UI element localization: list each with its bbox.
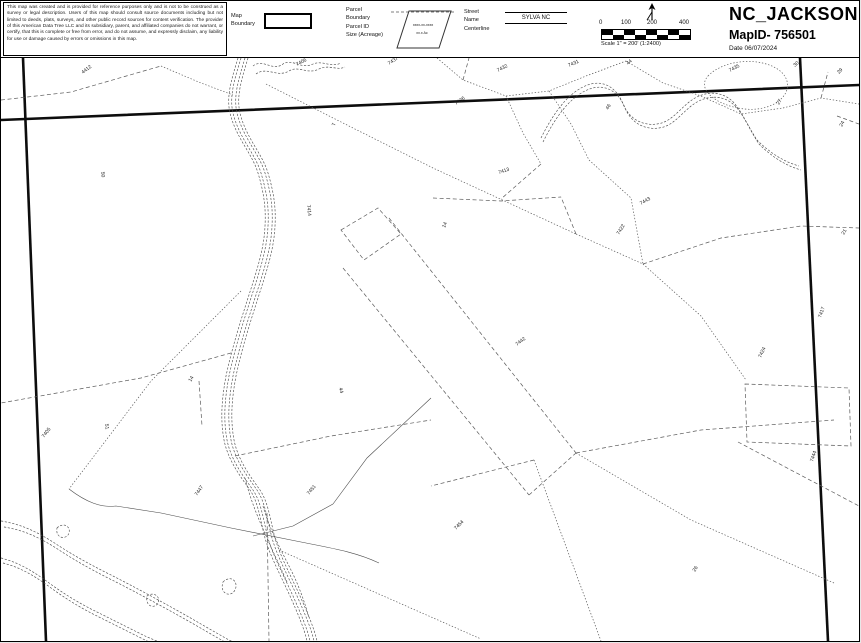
- map-boundary-swatch: [264, 13, 312, 29]
- scale-block: 0 100 200 400 Scale 1" = 200' (1:2400): [599, 2, 699, 56]
- parcel-label: 46: [605, 103, 613, 111]
- river-bank: [222, 58, 307, 641]
- parcel-line: [534, 460, 601, 641]
- title-block: NC_JACKSON MapID- 756501 Date 06/07/2024: [729, 4, 857, 52]
- map-id: MapID- 756501: [729, 28, 857, 42]
- parcel-label: 14: [441, 221, 449, 229]
- parcel-label: 7424: [757, 346, 767, 359]
- parcel-line: [549, 91, 589, 160]
- legend-map-boundary-label: Map Boundary: [231, 12, 255, 29]
- map-date: Date 06/07/2024: [729, 45, 857, 52]
- parcel-label: 7442: [515, 336, 528, 348]
- stream-loop: [57, 525, 70, 537]
- parcel-line: [199, 381, 202, 426]
- parcel-sample-shape: [397, 11, 451, 48]
- parcel-line: [431, 460, 534, 486]
- street-sample: SYLVA NC: [505, 12, 567, 24]
- parcel-label: 7414: [305, 205, 312, 217]
- parcel-label: 14: [188, 375, 196, 383]
- disclaimer-text: This map was created and is provided for…: [3, 2, 227, 56]
- legend-street: Street Name Centerline: [464, 8, 490, 33]
- parcel-label: 26: [692, 565, 700, 573]
- header: This map was created and is provided for…: [1, 1, 859, 58]
- stream-loop: [222, 579, 236, 594]
- parcel-line: [576, 453, 834, 583]
- stream: [4, 527, 248, 641]
- parcel-line: [783, 98, 859, 108]
- north-arrow-icon: [643, 3, 659, 21]
- map-canvas: 4412740674377432743144743530292724467436…: [1, 58, 859, 641]
- parcel-label: 7443: [639, 196, 652, 207]
- parcel-label: 7447: [194, 484, 205, 497]
- map-boundary-line: [1, 85, 859, 120]
- legend-parcel: Parcel Boundary Parcel ID Size (Acreage): [346, 6, 383, 40]
- parcel-label: 7436: [454, 95, 467, 106]
- parcel-label: 7431: [567, 59, 580, 69]
- parcel-line: [69, 291, 241, 489]
- parcel-label: 7417: [817, 306, 827, 319]
- parcel-line: [463, 58, 469, 80]
- river: [1, 58, 801, 641]
- parcel-line: [576, 420, 834, 453]
- parcel-label: 7405: [41, 427, 53, 440]
- parcel-line: [69, 489, 379, 563]
- parcel-label: 50: [99, 171, 106, 178]
- map-boundary-line: [23, 58, 46, 641]
- river-bank: [229, 58, 314, 641]
- parcel-label: 24: [838, 120, 846, 128]
- parcel-line: [343, 268, 529, 495]
- parcel-label: 4412: [81, 64, 94, 76]
- scale-caption: Scale 1" = 200' (1:2400): [601, 41, 697, 47]
- parcel-label: 7422: [616, 223, 627, 236]
- map-boundary-lines: [1, 58, 859, 641]
- parcel-line: [341, 208, 401, 260]
- parcel-line: [738, 442, 859, 506]
- parcel-label: 29: [836, 67, 844, 75]
- parcel-sample-id: xxxx-xx-xxxx: [413, 23, 434, 27]
- parcel-label: 7432: [496, 63, 509, 74]
- parcel-label: 51: [103, 423, 110, 430]
- parcel-sample-symbol: xxxx-xx-xxxx xx.x Ac: [391, 6, 455, 52]
- parcel-line: [821, 72, 828, 98]
- map-area: 4412740674377432743144743530292724467436…: [1, 58, 859, 641]
- parcel-label: 7454: [453, 519, 465, 531]
- parcel-line: [333, 398, 431, 504]
- map-boundary-line: [800, 58, 828, 641]
- stream-loop: [147, 594, 159, 606]
- parcel-line: [745, 384, 851, 446]
- creek: [543, 87, 801, 170]
- river-meander: [256, 67, 345, 74]
- parcel-line: [506, 96, 541, 164]
- parcel-label: 7406: [295, 58, 308, 68]
- scale-bar-row-bottom: [602, 35, 690, 40]
- parcel-label: 44: [625, 58, 633, 66]
- stream: [1, 558, 171, 641]
- parcel-label: 44: [337, 387, 344, 394]
- parcel-label: 7444: [809, 450, 818, 463]
- parcel-label: 7413: [498, 167, 511, 176]
- parcel-boundaries: [1, 58, 859, 641]
- legend-map-boundary: Map Boundary: [231, 12, 312, 29]
- parcel-line: [389, 218, 576, 453]
- map-sheet: This map was created and is provided for…: [0, 0, 860, 642]
- parcel-label: 7435: [728, 63, 741, 74]
- parcel-label: 7: [331, 122, 337, 126]
- scale-bar: [601, 29, 691, 40]
- parcel-line: [576, 234, 643, 264]
- parcel-line: [161, 66, 233, 95]
- parcel-sample-size: xx.x Ac: [416, 31, 428, 35]
- parcel-label: 21: [841, 228, 849, 236]
- parcel-label: 7451: [306, 484, 318, 497]
- parcel-line: [529, 453, 576, 495]
- stream: [1, 521, 245, 641]
- page-title: NC_JACKSON: [729, 4, 857, 25]
- parcel-labels-layer: 4412740674377432743144743530292724467436…: [41, 58, 849, 573]
- parcel-label: 7437: [387, 58, 400, 67]
- parcel-line: [643, 264, 746, 380]
- parcel-label: 27: [776, 98, 784, 106]
- parcel-line: [701, 96, 783, 114]
- parcel-line: [589, 160, 643, 264]
- parcel-line: [643, 226, 859, 264]
- parcel-line: [433, 197, 561, 201]
- parcel-line: [437, 58, 626, 96]
- scale-ticks: 0 100 200 400: [599, 20, 689, 28]
